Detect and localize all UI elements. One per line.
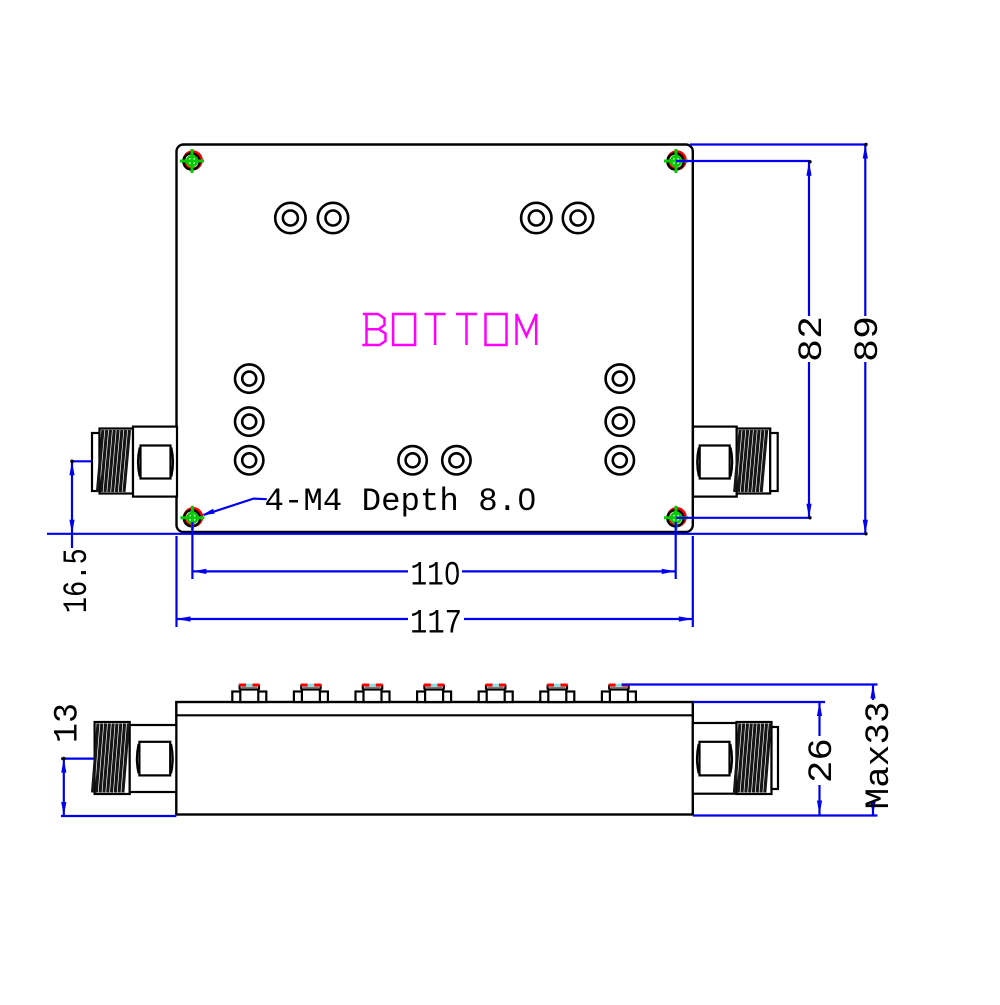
svg-text:26: 26 (804, 738, 842, 783)
svg-text:Max33: Max33 (861, 701, 899, 809)
svg-text:89: 89 (850, 316, 888, 362)
svg-text:16.5: 16.5 (59, 548, 97, 613)
svg-text:117: 117 (410, 606, 462, 644)
svg-text:82: 82 (794, 316, 832, 362)
svg-text:13: 13 (49, 703, 87, 743)
svg-text:4-M4 Depth 8.0: 4-M4 Depth 8.0 (265, 483, 537, 520)
